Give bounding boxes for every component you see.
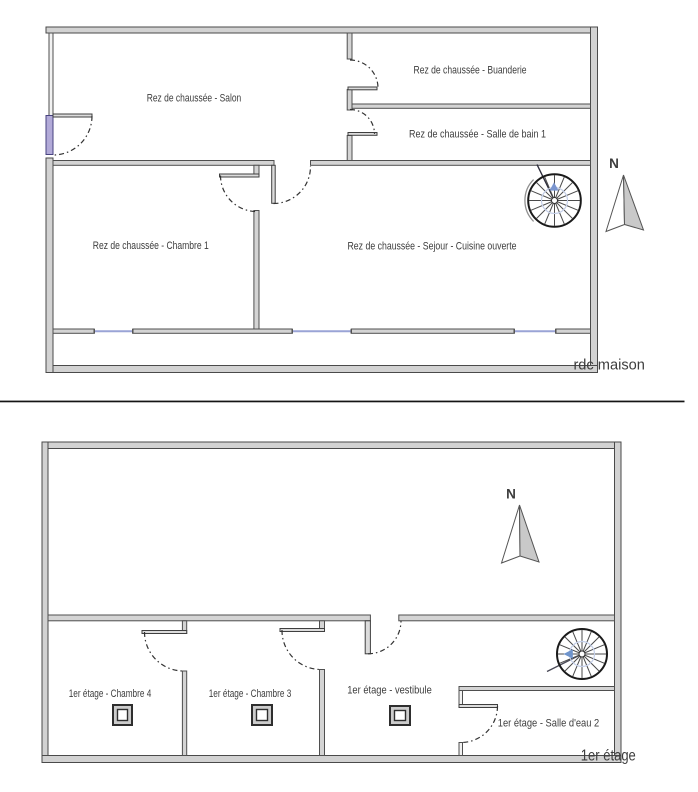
svg-text:1er étage - vestibule: 1er étage - vestibule [347, 685, 432, 697]
svg-text:Rez de chaussée - Sejour - Cui: Rez de chaussée - Sejour - Cuisine ouver… [348, 240, 517, 252]
svg-text:1er étage - Chambre 4: 1er étage - Chambre 4 [69, 688, 152, 700]
svg-text:rdc maison: rdc maison [573, 356, 645, 373]
svg-text:Rez de chaussée - Salle de bai: Rez de chaussée - Salle de bain 1 [409, 129, 546, 141]
svg-text:Rez de chaussée - Chambre 1: Rez de chaussée - Chambre 1 [93, 240, 209, 252]
svg-text:N: N [609, 156, 619, 171]
svg-text:Rez de chaussée - Salon: Rez de chaussée - Salon [147, 93, 242, 105]
svg-text:1er étage - Salle d'eau 2: 1er étage - Salle d'eau 2 [498, 718, 600, 730]
svg-text:1er étage: 1er étage [581, 747, 636, 764]
svg-text:1er étage - Chambre 3: 1er étage - Chambre 3 [209, 688, 292, 700]
svg-text:N: N [506, 487, 516, 502]
svg-text:Rez de chaussée - Buanderie: Rez de chaussée - Buanderie [414, 65, 527, 77]
